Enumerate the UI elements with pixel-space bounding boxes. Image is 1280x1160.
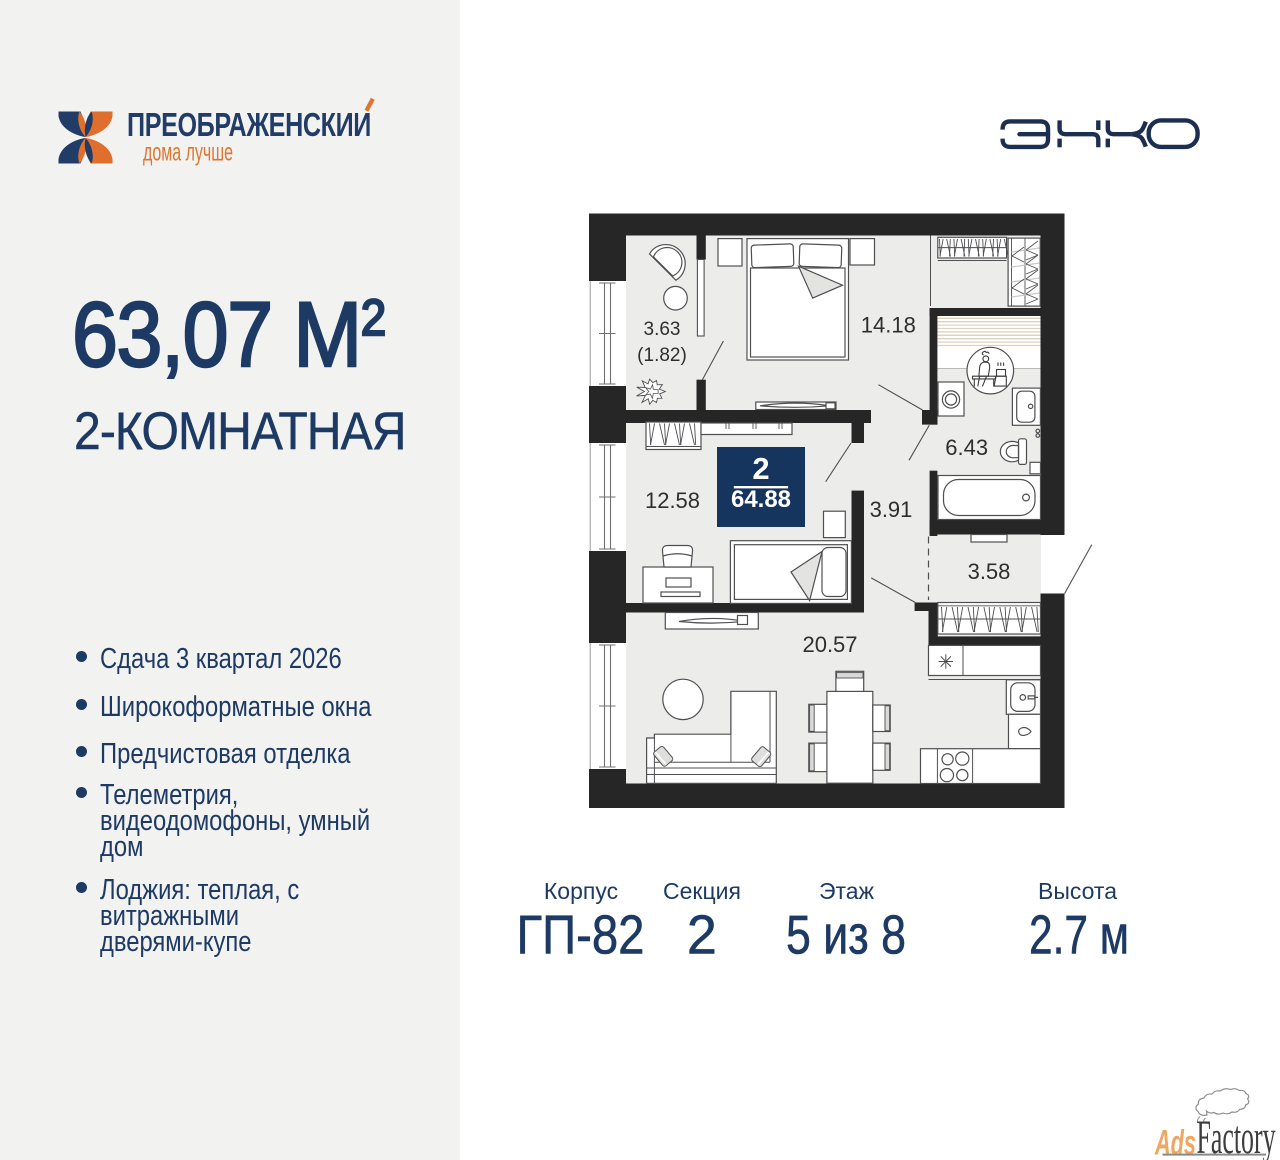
svg-text:Factory: Factory: [1197, 1111, 1276, 1160]
svg-text:2: 2: [752, 451, 769, 486]
svg-text:дома лучше: дома лучше: [143, 139, 233, 167]
svg-text:20.57: 20.57: [802, 632, 857, 657]
svg-text:3.58: 3.58: [968, 559, 1011, 584]
svg-text:(1.82): (1.82): [637, 345, 687, 366]
svg-text:3.91: 3.91: [870, 497, 913, 522]
svg-text:3.63: 3.63: [644, 319, 681, 340]
svg-text:6.43: 6.43: [945, 435, 988, 460]
svg-text:12.58: 12.58: [645, 488, 700, 513]
svg-text:64.88: 64.88: [731, 486, 791, 513]
svg-text:2: 2: [687, 904, 717, 966]
svg-text:5 из 8: 5 из 8: [786, 904, 906, 966]
svg-text:2.7 м: 2.7 м: [1029, 904, 1129, 966]
svg-text:ГП-82: ГП-82: [517, 904, 645, 966]
svg-text:14.18: 14.18: [861, 313, 916, 338]
